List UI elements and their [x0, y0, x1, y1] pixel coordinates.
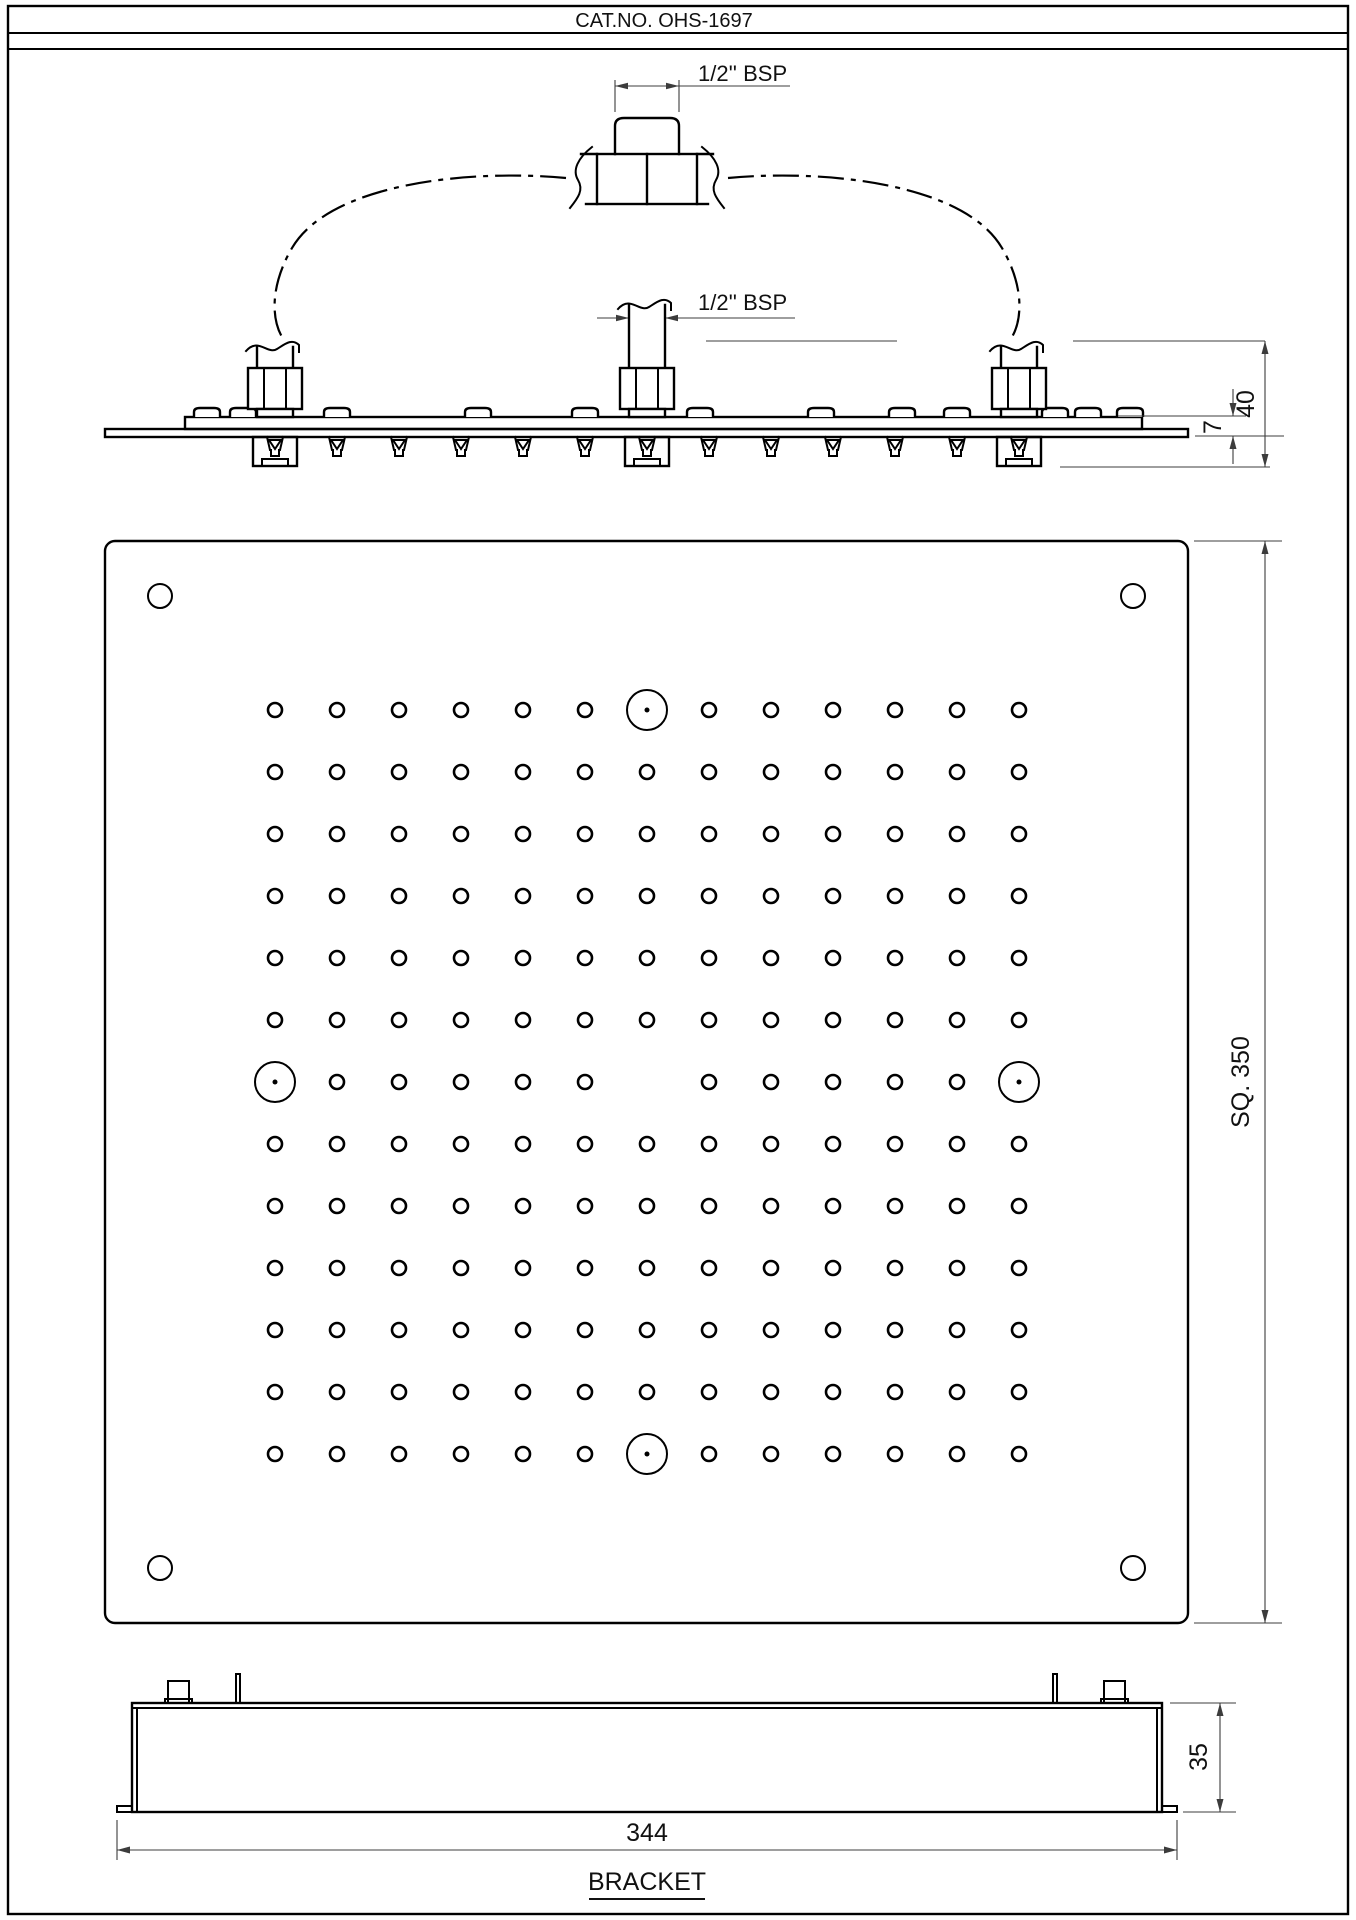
nozzle-hole	[950, 1385, 964, 1399]
nozzle-hole	[764, 1385, 778, 1399]
nozzle-hole	[950, 827, 964, 841]
nozzle-hole	[950, 1199, 964, 1213]
break-line-right	[702, 147, 724, 208]
arrow-down	[1217, 1799, 1224, 1812]
nozzle-hole	[454, 1137, 468, 1151]
connector-housing	[625, 437, 669, 466]
screw-bump	[194, 408, 220, 417]
nozzle-hole	[578, 703, 592, 717]
nozzle-hole	[454, 1013, 468, 1027]
nozzle-hole	[702, 1199, 716, 1213]
nozzle-hole	[888, 1323, 902, 1337]
screw-bump	[572, 408, 598, 417]
nozzle-hole	[392, 765, 406, 779]
inlet-connector-center	[618, 300, 674, 466]
hex-nut	[620, 368, 674, 409]
bracket-pin-thin-left	[236, 1674, 240, 1703]
nozzle-hole	[640, 1199, 654, 1213]
nozzle-hole	[578, 827, 592, 841]
nozzle-hole	[1012, 1199, 1026, 1213]
nozzle-hole	[330, 1075, 344, 1089]
nozzle-hole	[392, 1447, 406, 1461]
nozzle-hole	[764, 1013, 778, 1027]
nozzle-hole	[888, 827, 902, 841]
nozzle-hole	[330, 1137, 344, 1151]
nozzle-hole	[1012, 827, 1026, 841]
nozzle-hole	[330, 889, 344, 903]
nozzle-hole	[268, 1137, 282, 1151]
arrow-up	[1262, 541, 1269, 554]
nozzle-hole	[702, 951, 716, 965]
nozzle-hole	[1012, 951, 1026, 965]
nozzle-hole	[888, 1013, 902, 1027]
nozzle-hole	[702, 1137, 716, 1151]
nozzle-hole	[330, 1261, 344, 1275]
nozzle-orifice	[827, 440, 839, 449]
screw-bump	[889, 408, 915, 417]
nozzle-hole	[516, 765, 530, 779]
tee-thread-label: 1/2'' BSP	[698, 61, 787, 86]
nozzle-hole	[764, 889, 778, 903]
nozzle-orifice	[1013, 440, 1025, 449]
nozzle-hole	[454, 951, 468, 965]
nozzle-hole	[516, 1075, 530, 1089]
nozzle-hole	[764, 1199, 778, 1213]
nozzle-hole	[578, 1137, 592, 1151]
drawing-canvas: CAT.NO. OHS-1697 1/2'' BSP	[0, 0, 1356, 1920]
square-size-value: SQ. 350	[1227, 1036, 1255, 1128]
nozzle-hole	[888, 951, 902, 965]
nozzle-hole	[888, 1075, 902, 1089]
nozzle-hole	[826, 1261, 840, 1275]
nozzle-hole	[578, 1075, 592, 1089]
nozzle-hole	[1012, 1261, 1026, 1275]
pipe-connectors	[246, 300, 1046, 466]
nozzle-hole	[392, 1385, 406, 1399]
nozzle-hole	[1012, 765, 1026, 779]
nozzle-hole	[826, 951, 840, 965]
arrow-right	[1164, 1847, 1177, 1854]
arrow-right	[666, 83, 679, 90]
nozzle-orifice	[331, 440, 343, 449]
dim-bracket-height: 35	[1170, 1703, 1236, 1812]
arrow-left	[615, 83, 628, 90]
nozzle-hole	[1012, 1385, 1026, 1399]
nozzle-hole	[454, 827, 468, 841]
nozzle-hole	[1012, 1013, 1026, 1027]
nozzle-hole	[454, 1075, 468, 1089]
nozzle-orifice	[951, 440, 963, 449]
bar-profile	[185, 417, 1142, 429]
nozzle-hole	[392, 827, 406, 841]
nozzle-hole	[640, 827, 654, 841]
connector-housing	[253, 437, 297, 466]
corner-screw-hole-bl	[148, 1556, 172, 1580]
inlet-hole-center-dot	[273, 1080, 278, 1085]
nozzle-hole	[950, 765, 964, 779]
nozzle-hole	[764, 827, 778, 841]
dim-tee-thread: 1/2'' BSP	[615, 61, 790, 112]
nozzle-hole	[330, 703, 344, 717]
supply-hose-left	[275, 176, 566, 337]
nozzle-hole	[950, 951, 964, 965]
nozzle-hole	[764, 765, 778, 779]
nozzle-hole	[578, 765, 592, 779]
nozzle-hole	[640, 1137, 654, 1151]
nozzle-hole	[454, 1323, 468, 1337]
screw-bump	[324, 408, 350, 417]
inlet-hole-center-dot	[645, 1452, 650, 1457]
nozzle-hole	[516, 889, 530, 903]
nozzle-hole	[516, 1261, 530, 1275]
arrow-left	[117, 1847, 130, 1854]
nut-collar	[629, 409, 665, 417]
nozzle-hole	[454, 1447, 468, 1461]
hex-nut	[248, 368, 302, 409]
nozzle-hole	[268, 1323, 282, 1337]
nozzle-hole	[578, 1199, 592, 1213]
bracket-outline	[132, 1703, 1162, 1812]
nozzle-hole	[392, 1013, 406, 1027]
screw-bump	[1075, 408, 1101, 417]
nozzle-hole	[392, 1137, 406, 1151]
drawing-sheet: CAT.NO. OHS-1697 1/2'' BSP	[0, 0, 1356, 1920]
inlet-hole-center-dot	[1017, 1080, 1022, 1085]
nozzle-hole	[392, 1261, 406, 1275]
nozzle-hole	[268, 889, 282, 903]
bracket-height-value: 35	[1185, 1743, 1213, 1771]
nozzle-hole	[764, 1075, 778, 1089]
nozzle-hole	[516, 1137, 530, 1151]
nozzle-orifice	[765, 440, 777, 449]
screw-bump	[687, 408, 713, 417]
face-plate	[105, 541, 1188, 1623]
nozzle-hole	[764, 1261, 778, 1275]
nozzle-hole	[640, 1261, 654, 1275]
nozzle-hole	[826, 703, 840, 717]
nozzle-hole	[950, 1447, 964, 1461]
elevation-view: 1/2'' BSP 1/2'' BSP	[105, 61, 1284, 467]
arrow-down	[1262, 454, 1269, 467]
nozzle-hole	[454, 1199, 468, 1213]
nozzle-orifice	[703, 440, 715, 449]
arrow-up	[1230, 436, 1237, 449]
nozzle-hole	[702, 1385, 716, 1399]
nozzle-hole	[888, 1137, 902, 1151]
tee-nipple	[615, 118, 679, 154]
nozzle-hole	[268, 1447, 282, 1461]
nozzle-orifice	[889, 440, 901, 449]
screw-bump	[808, 408, 834, 417]
face-view: SQ. 350	[105, 541, 1282, 1623]
nozzle-hole	[640, 951, 654, 965]
nozzle-row	[267, 437, 1027, 456]
nozzle-hole	[888, 765, 902, 779]
nozzle-hole	[702, 703, 716, 717]
nozzle-hole	[392, 889, 406, 903]
nozzle-orifice	[517, 440, 529, 449]
plate-thickness-value: 7	[1199, 420, 1227, 434]
nozzle-hole	[1012, 1323, 1026, 1337]
nozzle-hole	[330, 1013, 344, 1027]
nozzle-hole	[1012, 1137, 1026, 1151]
nozzle-hole	[268, 1013, 282, 1027]
nozzle-hole	[826, 1013, 840, 1027]
mounting-bar	[185, 417, 1142, 429]
pipe-break-line	[246, 342, 299, 352]
nozzle-hole	[888, 703, 902, 717]
nozzle-orifice	[455, 440, 467, 449]
bracket-pin-thin-right	[1053, 1674, 1057, 1703]
nozzle-hole	[392, 1199, 406, 1213]
nozzle-hole	[454, 1261, 468, 1275]
inlet-thread-label: 1/2'' BSP	[698, 290, 787, 315]
nozzle-hole	[516, 1385, 530, 1399]
nozzle-hole	[1012, 703, 1026, 717]
nozzle-hole	[268, 703, 282, 717]
nozzle-hole	[950, 1261, 964, 1275]
nozzle-hole	[826, 1447, 840, 1461]
nozzle-hole	[578, 1447, 592, 1461]
bracket-width-value: 344	[626, 1819, 668, 1847]
nozzle-hole	[516, 827, 530, 841]
nozzle-orifice	[579, 440, 591, 449]
nut-collar	[257, 409, 293, 417]
nozzle-hole	[516, 1199, 530, 1213]
nozzle-hole	[764, 951, 778, 965]
bracket-view: 35 344 BRACKET	[117, 1674, 1236, 1899]
nozzle-hole	[392, 1075, 406, 1089]
nozzle-orifice	[641, 440, 653, 449]
nozzle-hole	[268, 1385, 282, 1399]
nozzle-hole	[826, 827, 840, 841]
nozzle-hole	[268, 1199, 282, 1213]
nozzle-hole	[330, 1323, 344, 1337]
nozzle-hole	[330, 1385, 344, 1399]
nozzle-hole	[454, 1385, 468, 1399]
inlet-hole-center-dot	[645, 708, 650, 713]
face-plate-profile	[105, 429, 1188, 437]
nozzle-hole	[888, 1199, 902, 1213]
nozzle-hole	[268, 951, 282, 965]
pipe-stub	[629, 305, 665, 368]
nozzle-hole	[888, 1447, 902, 1461]
nozzle-hole	[330, 1447, 344, 1461]
nozzle-hole	[826, 1323, 840, 1337]
dim-inlet-thread: 1/2'' BSP	[597, 290, 795, 359]
nozzle-hole	[516, 1447, 530, 1461]
nozzle-hole	[640, 1013, 654, 1027]
page-border	[8, 6, 1348, 1914]
nozzle-hole	[268, 827, 282, 841]
nozzle-hole	[578, 951, 592, 965]
nozzle-hole	[950, 1013, 964, 1027]
nozzle-hole	[330, 1199, 344, 1213]
nozzle-hole	[578, 1323, 592, 1337]
nozzle-hole	[764, 1447, 778, 1461]
nozzle-hole	[764, 703, 778, 717]
nozzle-hole	[826, 765, 840, 779]
nozzle-hole	[454, 703, 468, 717]
nozzle-hole	[950, 1075, 964, 1089]
bracket-foot-left	[117, 1806, 132, 1812]
nozzle-hole	[888, 1385, 902, 1399]
nozzle-hole	[702, 1447, 716, 1461]
nozzle-orifice	[393, 440, 405, 449]
arrow-right-in	[616, 315, 629, 322]
nozzle-hole	[950, 889, 964, 903]
nozzle-hole	[392, 951, 406, 965]
pipe-break-line	[990, 342, 1043, 352]
nozzle-hole	[826, 1137, 840, 1151]
nozzle-hole	[702, 765, 716, 779]
nozzle-hole	[392, 1323, 406, 1337]
nozzle-hole	[702, 827, 716, 841]
arrow-down	[1262, 1610, 1269, 1623]
connector-housing	[997, 437, 1041, 466]
nozzle-hole-grid	[255, 690, 1039, 1474]
nozzle-hole	[826, 889, 840, 903]
break-line-left	[570, 147, 592, 208]
nozzle-hole	[888, 1261, 902, 1275]
dim-square-size: SQ. 350	[1194, 541, 1282, 1623]
nozzle-orifice	[269, 440, 281, 449]
nozzle-hole	[578, 1261, 592, 1275]
nozzle-hole	[1012, 1447, 1026, 1461]
nozzle-hole	[516, 1323, 530, 1337]
nozzle-hole	[702, 1075, 716, 1089]
arrow-up	[1217, 1703, 1224, 1716]
corner-screw-hole-tr	[1121, 584, 1145, 608]
bracket-pin-base-right	[1101, 1699, 1128, 1703]
page-frame: CAT.NO. OHS-1697	[8, 6, 1348, 1914]
nozzle-hole	[578, 1013, 592, 1027]
bracket-foot-right	[1162, 1806, 1177, 1812]
dim-bracket-width: 344	[117, 1819, 1177, 1860]
hex-nut	[992, 368, 1046, 409]
nut-collar	[1001, 409, 1037, 417]
nozzle-hole	[516, 951, 530, 965]
nozzle-hole	[826, 1385, 840, 1399]
nozzle-hole	[268, 1261, 282, 1275]
nozzle-hole	[640, 889, 654, 903]
nozzle-hole	[1012, 889, 1026, 903]
nozzle-hole	[888, 889, 902, 903]
nozzle-hole	[640, 765, 654, 779]
corner-screw-hole-br	[1121, 1556, 1145, 1580]
screw-bump	[944, 408, 970, 417]
nozzle-hole	[268, 765, 282, 779]
bracket-body	[117, 1674, 1177, 1812]
nozzle-hole	[454, 889, 468, 903]
bracket-caption: BRACKET	[588, 1868, 706, 1896]
nozzle-hole	[330, 827, 344, 841]
corner-screw-hole-tl	[148, 584, 172, 608]
nozzle-hole	[950, 1137, 964, 1151]
nozzle-hole	[950, 1323, 964, 1337]
nozzle-hole	[702, 1261, 716, 1275]
nozzle-hole	[640, 1323, 654, 1337]
nozzle-hole	[950, 703, 964, 717]
nozzle-hole	[702, 1013, 716, 1027]
nozzle-hole	[640, 1385, 654, 1399]
nozzle-hole	[578, 1385, 592, 1399]
nozzle-hole	[516, 703, 530, 717]
nozzle-hole	[330, 765, 344, 779]
nozzle-hole	[826, 1075, 840, 1089]
bracket-pin-base-left	[165, 1699, 192, 1703]
dim-overall-height: 40	[706, 341, 1270, 467]
nozzle-hole	[764, 1137, 778, 1151]
nozzle-hole	[702, 1323, 716, 1337]
nozzle-hole	[392, 703, 406, 717]
arrow-up	[1262, 341, 1269, 354]
nozzle-hole	[764, 1323, 778, 1337]
nozzle-hole	[454, 765, 468, 779]
tee-fitting	[570, 118, 724, 208]
screw-bump	[465, 408, 491, 417]
arrow-left-in	[665, 315, 678, 322]
pipe-break-line	[618, 300, 671, 310]
nozzle-hole	[826, 1199, 840, 1213]
nozzle-hole	[516, 1013, 530, 1027]
nozzle-hole	[578, 889, 592, 903]
nozzle-hole	[330, 951, 344, 965]
nozzle-hole	[702, 889, 716, 903]
page-title: CAT.NO. OHS-1697	[575, 10, 752, 32]
